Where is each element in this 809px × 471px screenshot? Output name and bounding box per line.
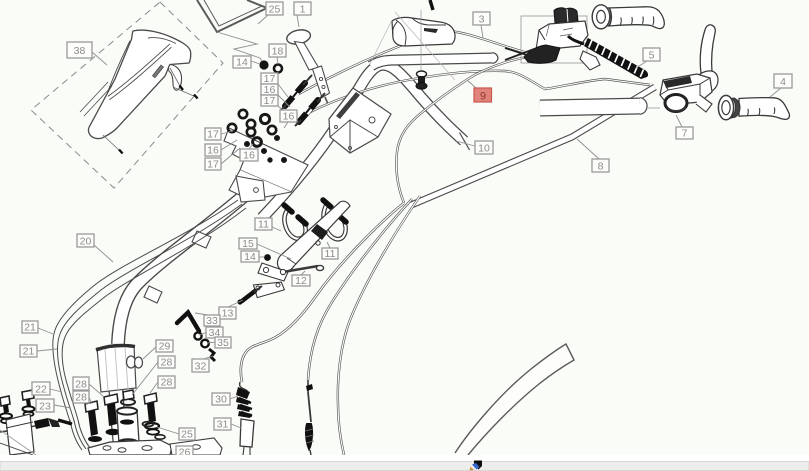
svg-text:10: 10 bbox=[478, 143, 490, 155]
svg-text:13: 13 bbox=[222, 308, 234, 320]
svg-text:31: 31 bbox=[217, 419, 229, 431]
svg-text:23: 23 bbox=[39, 401, 51, 413]
svg-text:21: 21 bbox=[24, 322, 36, 334]
svg-text:17: 17 bbox=[207, 129, 219, 141]
svg-text:1: 1 bbox=[300, 4, 306, 16]
svg-text:25: 25 bbox=[181, 429, 193, 441]
svg-text:29: 29 bbox=[159, 341, 171, 353]
svg-text:9: 9 bbox=[480, 91, 486, 103]
svg-text:16: 16 bbox=[243, 150, 255, 162]
svg-text:17: 17 bbox=[264, 95, 276, 107]
svg-text:12: 12 bbox=[295, 275, 307, 287]
svg-text:11: 11 bbox=[258, 219, 269, 231]
svg-text:30: 30 bbox=[215, 394, 227, 406]
svg-text:28: 28 bbox=[75, 379, 87, 391]
svg-text:5: 5 bbox=[649, 50, 655, 62]
svg-text:8: 8 bbox=[598, 161, 604, 173]
svg-text:16: 16 bbox=[207, 145, 219, 157]
svg-text:11: 11 bbox=[325, 248, 336, 260]
svg-text:20: 20 bbox=[80, 236, 92, 248]
svg-text:28: 28 bbox=[75, 392, 87, 404]
svg-text:14: 14 bbox=[244, 251, 256, 263]
svg-text:15: 15 bbox=[242, 238, 254, 250]
svg-text:22: 22 bbox=[35, 384, 47, 396]
svg-text:21: 21 bbox=[23, 346, 35, 358]
svg-text:33: 33 bbox=[206, 315, 218, 327]
svg-text:28: 28 bbox=[161, 377, 173, 389]
svg-text:4: 4 bbox=[780, 76, 786, 88]
svg-text:17: 17 bbox=[207, 159, 219, 171]
svg-text:28: 28 bbox=[161, 357, 173, 369]
svg-text:35: 35 bbox=[217, 337, 229, 349]
svg-text:3: 3 bbox=[479, 14, 485, 26]
svg-text:16: 16 bbox=[283, 111, 295, 123]
svg-text:7: 7 bbox=[682, 128, 688, 140]
svg-text:14: 14 bbox=[236, 57, 248, 69]
svg-text:38: 38 bbox=[74, 45, 86, 57]
svg-text:25: 25 bbox=[269, 4, 281, 16]
svg-text:32: 32 bbox=[195, 361, 207, 373]
svg-text:18: 18 bbox=[272, 46, 284, 58]
